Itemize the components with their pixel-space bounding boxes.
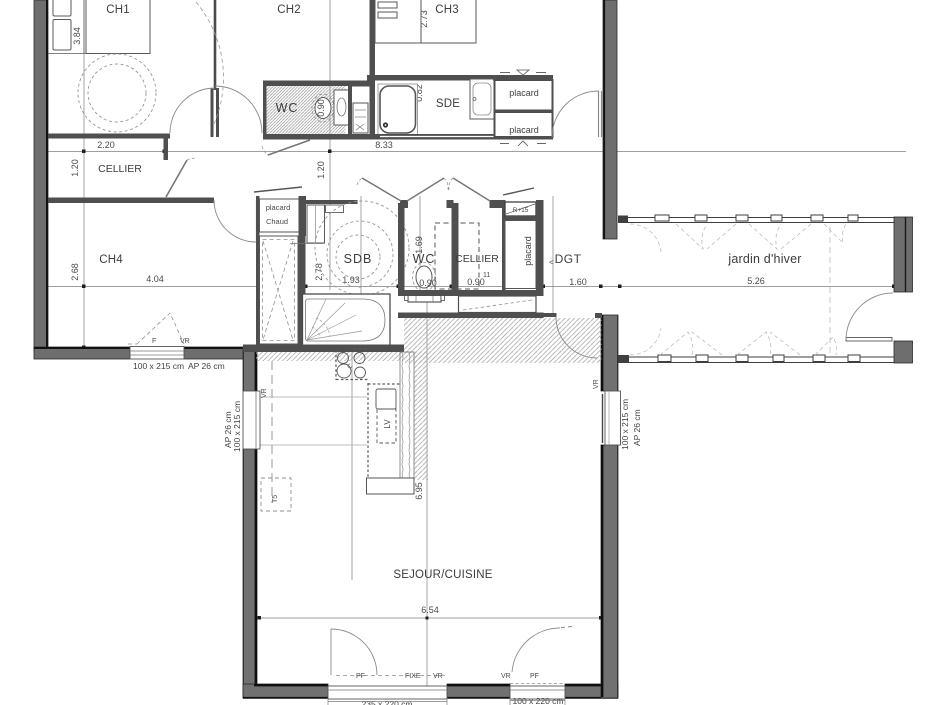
svg-text:R+15: R+15 [513, 207, 529, 214]
svg-text:0.90: 0.90 [419, 278, 437, 288]
svg-text:WC: WC [413, 252, 436, 266]
svg-text:placard: placard [523, 236, 533, 266]
svg-text:CH3: CH3 [435, 4, 459, 16]
svg-text:VR: VR [261, 388, 268, 398]
svg-text:3.84: 3.84 [72, 27, 82, 45]
svg-text:100 x 215 cm: 100 x 215 cm [232, 401, 242, 452]
svg-text:F: F [152, 338, 156, 345]
svg-text:6.95: 6.95 [414, 482, 424, 500]
svg-text:PF: PF [356, 673, 365, 680]
svg-text:T5: T5 [272, 495, 279, 503]
svg-text:CELLIER: CELLIER [455, 253, 499, 265]
svg-text:CH2: CH2 [277, 4, 301, 16]
svg-text:100 x 215 cm: 100 x 215 cm [620, 399, 630, 450]
svg-text:CH1: CH1 [106, 4, 130, 16]
svg-text:placard: placard [509, 125, 539, 135]
svg-text:VR: VR [593, 379, 600, 389]
svg-text:100 x 215 cm: 100 x 215 cm [133, 361, 184, 371]
svg-text:6.54: 6.54 [421, 605, 439, 615]
svg-text:jardin d'hiver: jardin d'hiver [727, 252, 801, 266]
svg-text:11: 11 [483, 272, 490, 279]
svg-text:5.26: 5.26 [747, 276, 765, 286]
svg-text:<: < [549, 258, 554, 267]
svg-text:SDB: SDB [344, 252, 373, 266]
svg-text:VR: VR [433, 673, 443, 680]
svg-text:LV: LV [383, 419, 392, 429]
svg-text:SEJOUR/CUISINE: SEJOUR/CUISINE [393, 569, 492, 581]
svg-text:CH4: CH4 [99, 254, 123, 266]
svg-text:1.20: 1.20 [70, 159, 80, 177]
svg-text:2.68: 2.68 [70, 263, 80, 281]
svg-text:2.20: 2.20 [97, 140, 115, 150]
svg-text:8.33: 8.33 [375, 140, 393, 150]
svg-text:AP 26 cm: AP 26 cm [632, 409, 642, 446]
svg-text:FIXE: FIXE [405, 673, 421, 680]
svg-text:VR: VR [501, 673, 511, 680]
svg-text:placard: placard [266, 203, 291, 212]
svg-text:1.60: 1.60 [569, 277, 587, 287]
svg-text:SDE: SDE [436, 98, 460, 110]
svg-text:1.20: 1.20 [316, 161, 326, 179]
svg-text:AP 26 cm: AP 26 cm [188, 361, 225, 371]
svg-text:PF: PF [530, 673, 539, 680]
svg-text:CELLIER: CELLIER [98, 163, 142, 175]
svg-text:WC: WC [276, 101, 299, 115]
svg-text:placard: placard [509, 88, 539, 98]
svg-text:0.90: 0.90 [316, 99, 326, 117]
svg-text:Chaud: Chaud [266, 217, 288, 226]
svg-text:4.04: 4.04 [146, 274, 164, 284]
svg-text:DGT: DGT [555, 252, 582, 266]
svg-text:235 x 220 cm: 235 x 220 cm [361, 699, 412, 705]
